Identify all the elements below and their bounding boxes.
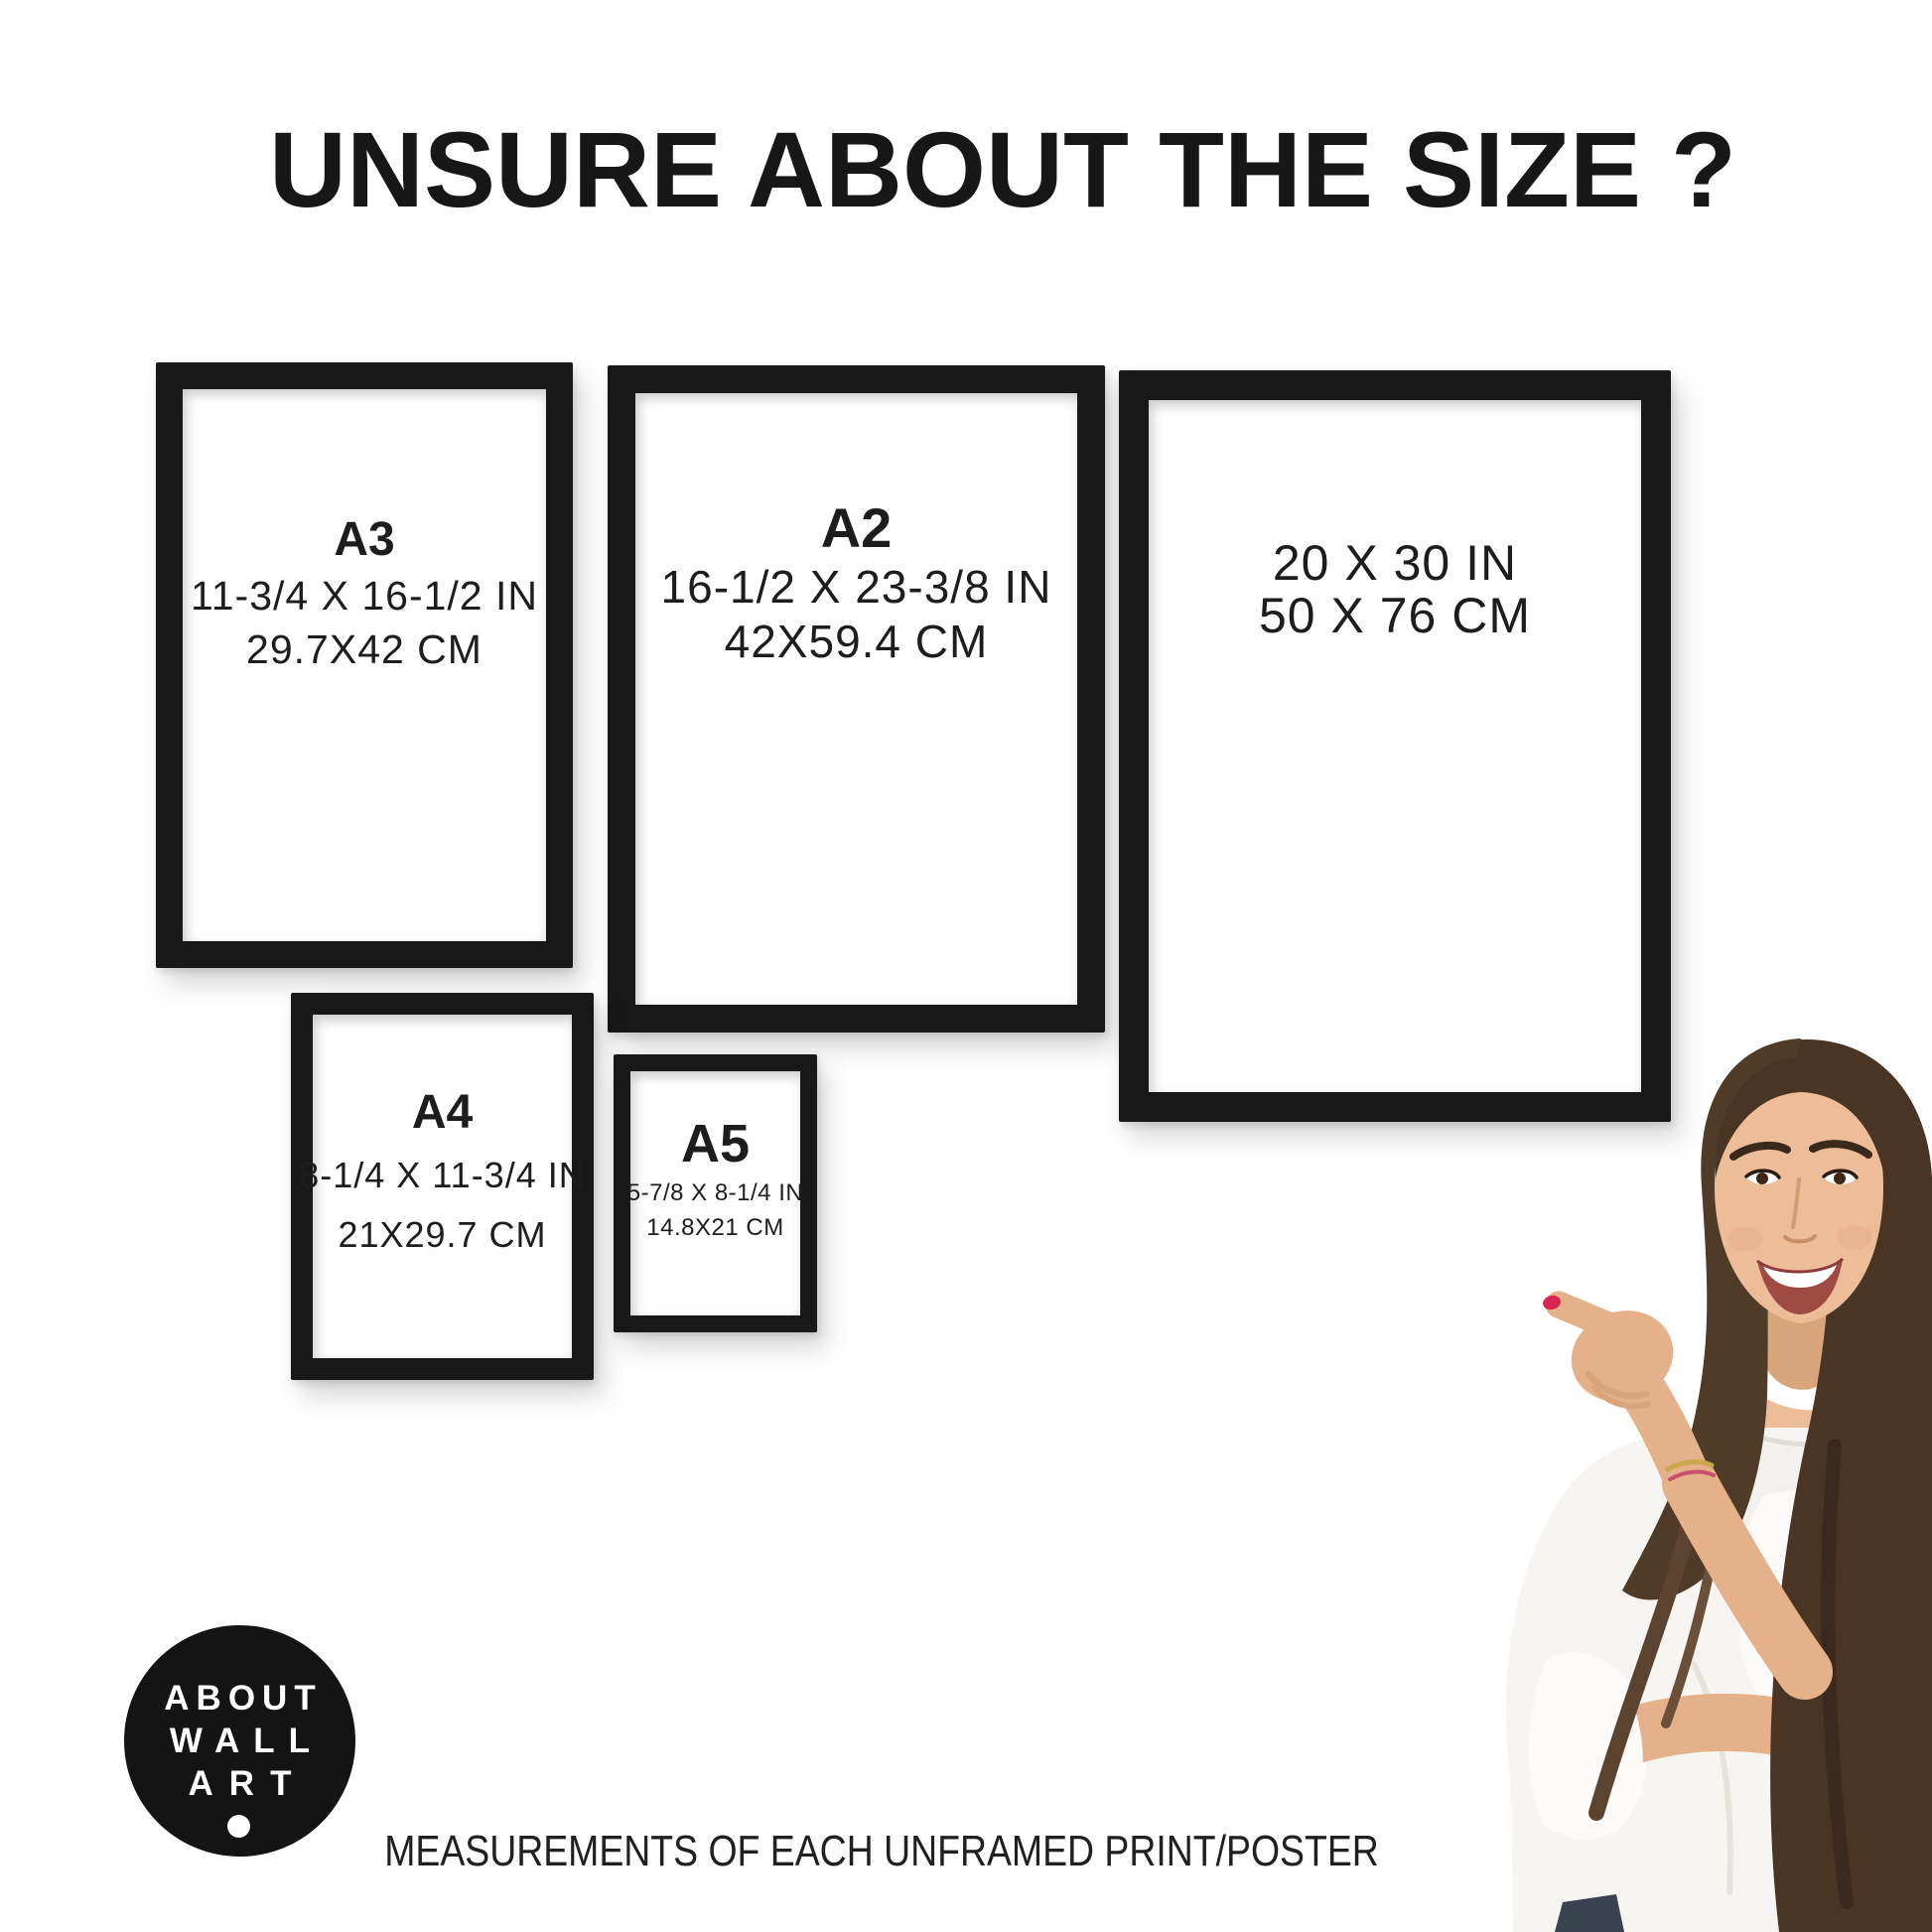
frame-a5-inches: 5-7/8 X 8-1/4 IN [614, 1175, 817, 1210]
frame-a5-cm: 14.8X21 CM [614, 1210, 817, 1245]
frame-a4-cm: 21X29.7 CM [291, 1205, 594, 1265]
frame-a2-inches: 16-1/2 X 23-3/8 IN [608, 560, 1105, 615]
frame-a2: A2 16-1/2 X 23-3/8 IN 42X59.4 CM [608, 365, 1105, 1033]
frame-a2-cm: 42X59.4 CM [608, 615, 1105, 669]
brand-logo-line3: ART [124, 1762, 355, 1805]
frame-a5: A5 5-7/8 X 8-1/4 IN 14.8X21 CM [614, 1054, 817, 1332]
frame-20x30: 20 X 30 IN 50 X 76 CM [1119, 370, 1671, 1122]
frame-a4-size-text: A4 8-1/4 X 11-3/4 IN 21X29.7 CM [291, 1080, 594, 1265]
brand-logo-line2: WALL [124, 1720, 355, 1762]
frame-a2-mat [635, 393, 1077, 1005]
frame-20x30-size-text: 20 X 30 IN 50 X 76 CM [1119, 537, 1671, 642]
frame-a4-label: A4 [291, 1080, 594, 1146]
frame-a3-size-text: A3 11-3/4 X 16-1/2 IN 29.7X42 CM [156, 511, 573, 676]
size-guide-infographic: UNSURE ABOUT THE SIZE ? A3 11-3/4 X 16-1… [0, 0, 1932, 1932]
page-title: UNSURE ABOUT THE SIZE ? [0, 107, 1932, 231]
frame-a2-label: A2 [608, 496, 1105, 560]
frame-a5-label: A5 [614, 1112, 817, 1175]
frame-20x30-cm: 50 X 76 CM [1119, 590, 1671, 642]
frame-a2-size-text: A2 16-1/2 X 23-3/8 IN 42X59.4 CM [608, 496, 1105, 669]
frame-a3-cm: 29.7X42 CM [156, 622, 573, 676]
footer-caption: MEASUREMENTS OF EACH UNFRAMED PRINT/POST… [132, 1827, 1631, 1876]
frame-a4-inches: 8-1/4 X 11-3/4 IN [291, 1146, 594, 1205]
frame-20x30-mat [1149, 400, 1641, 1092]
brand-logo-line1: ABOUT [124, 1677, 355, 1720]
brand-logo-text: ABOUT WALL ART [124, 1677, 355, 1805]
frame-a3-label: A3 [156, 511, 573, 569]
frame-a3-inches: 11-3/4 X 16-1/2 IN [156, 569, 573, 622]
frame-20x30-inches: 20 X 30 IN [1119, 537, 1671, 590]
frame-a5-size-text: A5 5-7/8 X 8-1/4 IN 14.8X21 CM [614, 1112, 817, 1245]
frame-a4: A4 8-1/4 X 11-3/4 IN 21X29.7 CM [291, 993, 594, 1380]
woman-pointing-photo [1485, 1029, 1932, 1932]
frame-a3: A3 11-3/4 X 16-1/2 IN 29.7X42 CM [156, 362, 573, 968]
brand-logo: ABOUT WALL ART [124, 1625, 355, 1857]
